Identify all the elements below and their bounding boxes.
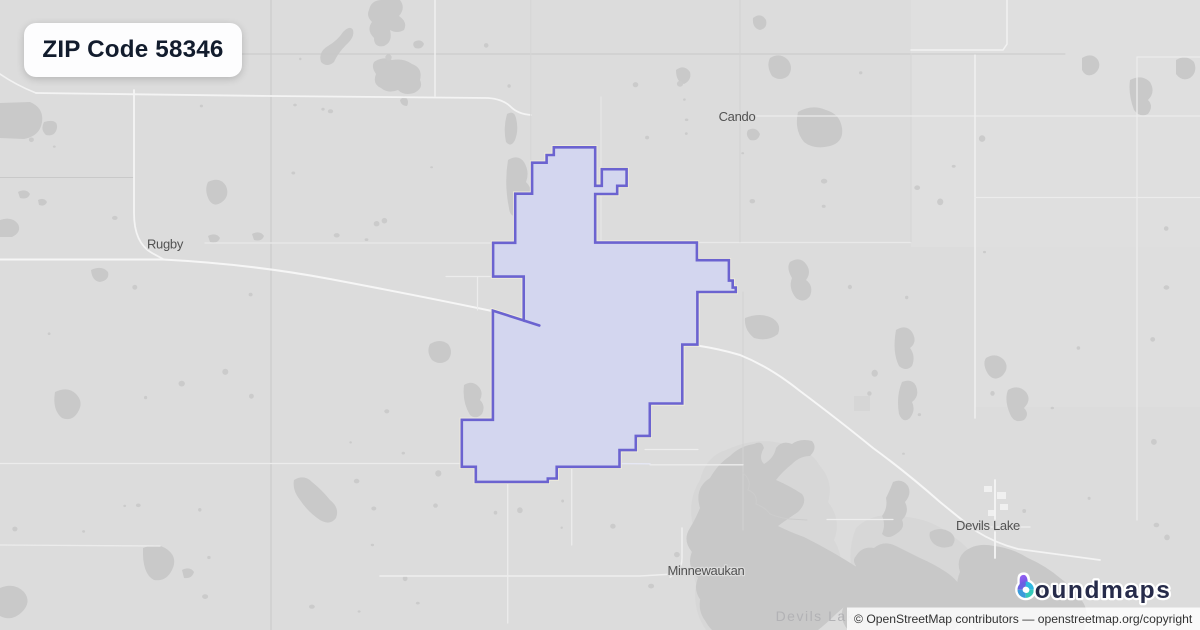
svg-text:oundmaps: oundmaps [1035,577,1172,604]
svg-text:Minnewaukan: Minnewaukan [668,563,745,578]
svg-text:Devils Lake: Devils Lake [956,518,1020,533]
svg-text:Rugby: Rugby [147,237,184,252]
svg-text:© OpenStreetMap contributors —: © OpenStreetMap contributors — openstree… [854,612,1193,626]
svg-text:Cando: Cando [719,109,756,124]
